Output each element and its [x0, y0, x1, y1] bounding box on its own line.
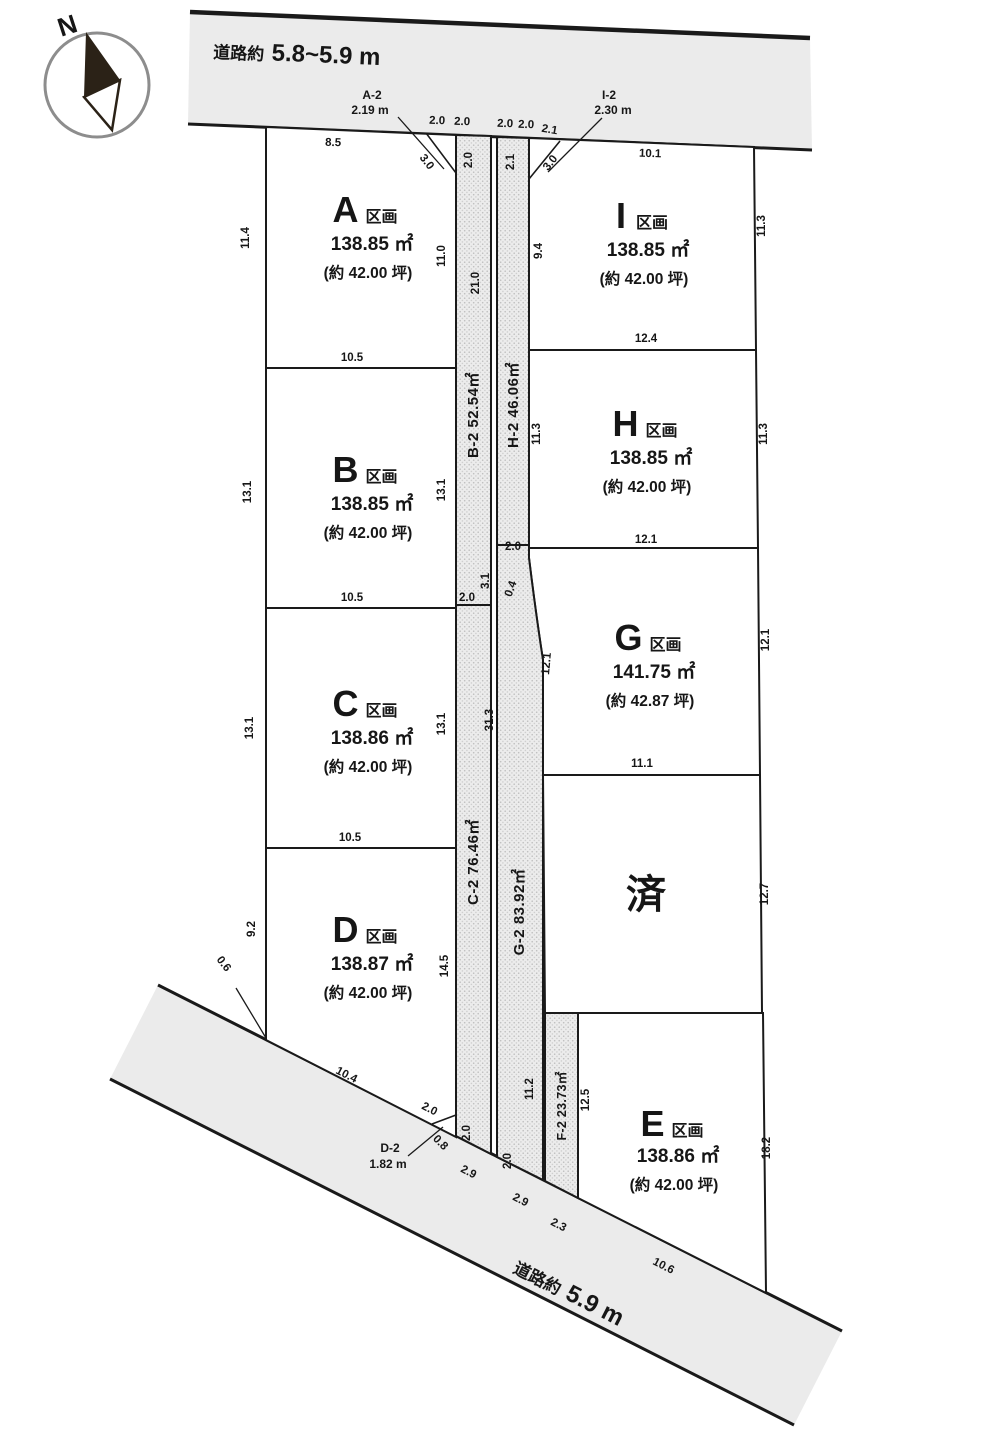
site-plan-svg: 道路約 5.8~5.9 m 道路約 5.9 m	[0, 0, 1000, 1448]
dim-top-2-0-a: 2.0	[429, 115, 445, 128]
top-road-label-prefix: 道路約	[213, 42, 265, 64]
dim-junction-2-0-left: 2.0	[459, 592, 475, 604]
dim-c2-bottom-width: 2.0	[461, 1125, 473, 1141]
top-road-label-value: 5.8~5.9 m	[271, 39, 381, 71]
plot-H-area-tsubo: (約 42.00 坪)	[603, 477, 692, 496]
dim-g-bottom: 11.1	[631, 758, 653, 770]
plot-G-letter: G	[614, 617, 642, 658]
plot-C-area-m2: 138.86 ㎡	[331, 726, 413, 749]
plot-B-letter: B	[332, 449, 358, 490]
dim-h-bottom: 12.1	[635, 534, 658, 546]
dim-h-right: 11.3	[758, 423, 770, 445]
dim-e-left: 12.5	[580, 1088, 592, 1111]
dim-e-right: 18.2	[761, 1137, 773, 1159]
strip-B2-label: B-2 52.54㎡	[464, 372, 482, 458]
dim-d-left: 9.2	[246, 921, 258, 937]
north-label: N	[54, 8, 81, 42]
dim-b2-top-width: 2.0	[463, 152, 475, 168]
plot-B-shape	[266, 368, 456, 608]
plot-I-area-tsubo: (約 42.00 坪)	[600, 269, 689, 288]
plot-E-area-m2: 138.86 ㎡	[637, 1144, 719, 1167]
plot-E-area-tsubo: (約 42.00 坪)	[630, 1175, 719, 1194]
dim-b-right: 13.1	[436, 478, 448, 501]
dim-b-bottom: 10.5	[341, 592, 364, 604]
dim-h2-top-width: 2.1	[505, 153, 517, 170]
plot-A-area-tsubo: (約 42.00 坪)	[324, 263, 413, 282]
note-I2-value: 2.30 m	[594, 103, 631, 117]
plot-C-area-tsubo: (約 42.00 坪)	[324, 757, 413, 776]
note-A2-value: 2.19 m	[351, 103, 388, 117]
dim-i-bottom: 12.4	[635, 333, 658, 345]
dim-strip-21-0: 21.0	[470, 272, 482, 294]
plot-G-area-tsubo: (約 42.87 坪)	[606, 691, 695, 710]
strip-H2-shape	[497, 137, 529, 545]
dim-sold-right: 12.7	[759, 883, 771, 905]
note-D2-value: 1.82 m	[369, 1157, 406, 1171]
plot-H-suffix: 区画	[645, 422, 677, 440]
strip-H2-label: H-2 46.06㎡	[504, 362, 522, 448]
plot-A-letter: A	[332, 189, 358, 230]
plot-H-area-m2: 138.85 ㎡	[610, 446, 692, 469]
plot-B-area-tsubo: (約 42.00 坪)	[324, 523, 413, 542]
dim-a-bottom: 10.5	[341, 352, 364, 364]
strip-F2-label: F-2 23.73㎡	[554, 1071, 569, 1140]
plot-A-suffix: 区画	[365, 208, 397, 226]
dim-c-right: 13.1	[436, 712, 448, 735]
dim-b-left: 13.1	[242, 480, 254, 503]
dim-d-right: 14.5	[439, 954, 451, 977]
plot-I-area-m2: 138.85 ㎡	[607, 238, 689, 261]
dim-a-right: 11.0	[436, 245, 448, 267]
compass: N	[45, 8, 149, 137]
dim-i-left: 9.4	[533, 242, 545, 259]
strip-B2-shape	[456, 135, 491, 605]
plot-B-area-m2: 138.85 ㎡	[331, 492, 413, 515]
dim-strip-31-3: 31.3	[484, 709, 496, 731]
plot-D-suffix: 区画	[365, 928, 397, 946]
dim-h-left: 11.3	[531, 423, 543, 445]
dim-top-2-0-d: 2.0	[518, 119, 534, 132]
plot-B-suffix: 区画	[365, 468, 397, 486]
dim-junction-2-0-top: 2.0	[505, 541, 521, 553]
dim-top-2-0-c: 2.0	[497, 118, 513, 131]
dim-g-left: 12.1	[540, 651, 554, 675]
strip-G2-label: G-2 83.92㎡	[510, 869, 528, 956]
plot-C-letter: C	[332, 683, 358, 724]
dim-g2-bottom-width: 2.0	[502, 1153, 514, 1169]
note-A2-name: A-2	[362, 88, 382, 102]
plot-H-letter: H	[612, 403, 638, 444]
note-D2-name: D-2	[380, 1141, 400, 1155]
plot-I-suffix: 区画	[636, 214, 668, 232]
plot-A-area-m2: 138.85 ㎡	[331, 232, 413, 255]
dim-f2-left: 11.2	[524, 1078, 536, 1100]
dim-i-right: 11.3	[756, 215, 768, 237]
plot-C-suffix: 区画	[365, 702, 397, 720]
land-plot-diagram: 道路約 5.8~5.9 m 道路約 5.9 m	[0, 0, 1000, 1448]
dim-0-6: 0.6	[214, 954, 233, 974]
plot-G-area-m2: 141.75 ㎡	[613, 660, 695, 683]
dim-top-2-0-b: 2.0	[454, 116, 470, 129]
strip-G2-shape	[497, 545, 543, 1180]
plot-D-letter: D	[332, 909, 358, 950]
dim-i-top: 10.1	[639, 148, 662, 161]
dim-g-right: 12.1	[760, 628, 772, 651]
dim-c-bottom: 10.5	[339, 832, 362, 844]
note-I2-name: I-2	[602, 88, 616, 102]
plot-I-letter: I	[616, 195, 626, 236]
sold-plot-label: 済	[626, 873, 667, 917]
plot-E-suffix: 区画	[672, 1122, 704, 1140]
plot-D-area-m2: 138.87 ㎡	[331, 952, 413, 975]
dim-a-top: 8.5	[325, 137, 342, 150]
plot-G-suffix: 区画	[650, 636, 682, 654]
strip-C2-label: C-2 76.46㎡	[464, 819, 482, 905]
dim-c-left: 13.1	[244, 716, 256, 739]
dim-junction-3-1: 3.1	[480, 572, 492, 589]
dim-a-left: 11.4	[240, 227, 252, 249]
plot-E-letter: E	[640, 1103, 664, 1144]
plot-D-area-tsubo: (約 42.00 坪)	[324, 983, 413, 1002]
